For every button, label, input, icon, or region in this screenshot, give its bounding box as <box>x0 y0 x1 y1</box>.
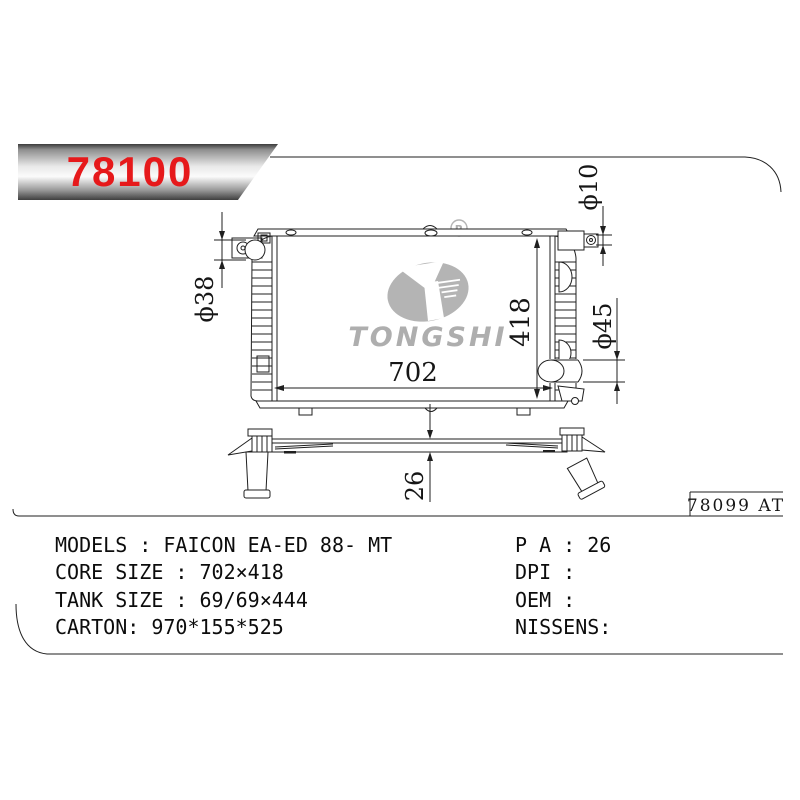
logo-brand-text: TONGSHI <box>348 322 507 353</box>
spec-nissens: NISSENS: <box>515 616 611 638</box>
spec-models: MODELS : FAICON EA-ED 88- MT <box>55 534 392 556</box>
catalog-page: 78100 78099 AT R TONGSHI <box>0 0 800 800</box>
dimension-outlet: ϕ45 <box>583 298 625 404</box>
frame-divider-line <box>13 509 783 516</box>
spec-oem: OEM : <box>515 589 575 611</box>
dimension-core-height: 418 <box>506 238 540 399</box>
dimension-core-width: 702 <box>274 358 553 391</box>
dim-outlet-label: ϕ45 <box>589 303 617 350</box>
spec-carton: CARTON: 970*155*525 <box>55 616 284 638</box>
dimension-core-thickness: 26 <box>401 404 433 502</box>
spec-pa: P A : 26 <box>515 534 611 556</box>
frame-top-line <box>270 157 781 192</box>
dim-width-label: 702 <box>388 358 438 388</box>
dim-bracket-hole-label: ϕ10 <box>575 164 603 211</box>
tongshi-logo: R TONGSHI <box>348 220 507 353</box>
dimension-inlet: ϕ38 <box>191 212 246 322</box>
spec-core-size: CORE SIZE : 702×418 <box>55 561 284 583</box>
dim-thickness-label: 26 <box>401 471 429 502</box>
spec-dpi: DPI : <box>515 561 575 583</box>
radiator-technical-drawing: 78099 AT R TONGSHI <box>0 0 800 800</box>
dimension-bracket-hole: ϕ10 <box>575 164 612 266</box>
dim-inlet-label: ϕ38 <box>191 276 219 323</box>
ref-code: 78099 AT <box>687 496 785 516</box>
dim-height-label: 418 <box>506 297 536 347</box>
spec-tank-size: TANK SIZE : 69/69×444 <box>55 589 308 611</box>
